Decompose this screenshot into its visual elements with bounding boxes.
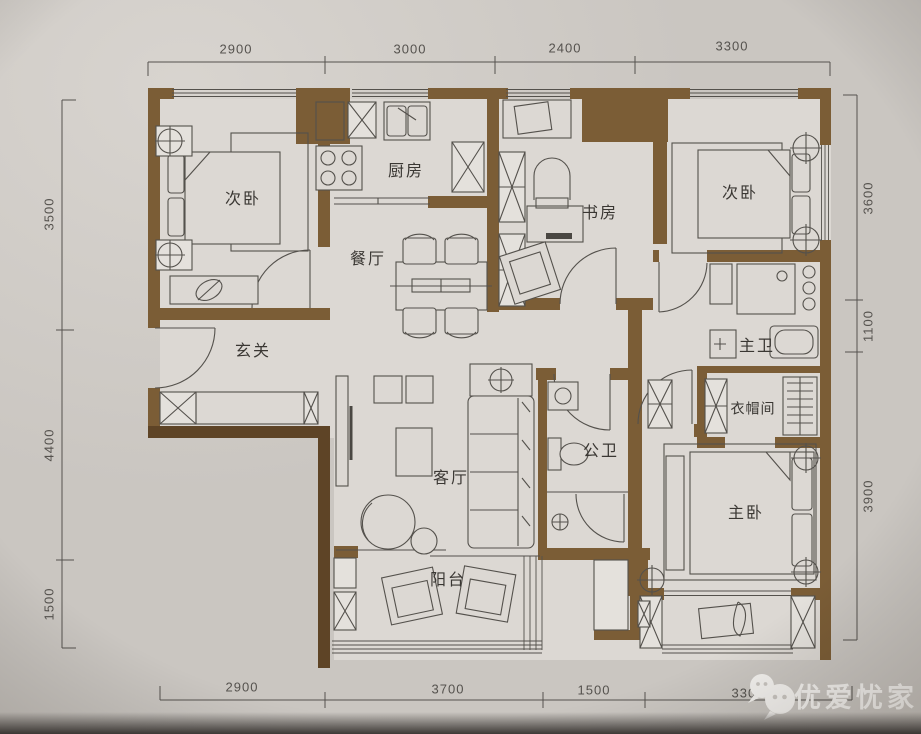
- photo-vignette: [0, 0, 921, 734]
- photo-bottom-edge: [0, 712, 921, 734]
- floor-plan-image: 2900 3000 2400 3300 3500 4400 1500 3600 …: [0, 0, 921, 734]
- floorplan-photo: 2900 3000 2400 3300 3500 4400 1500 3600 …: [0, 0, 921, 734]
